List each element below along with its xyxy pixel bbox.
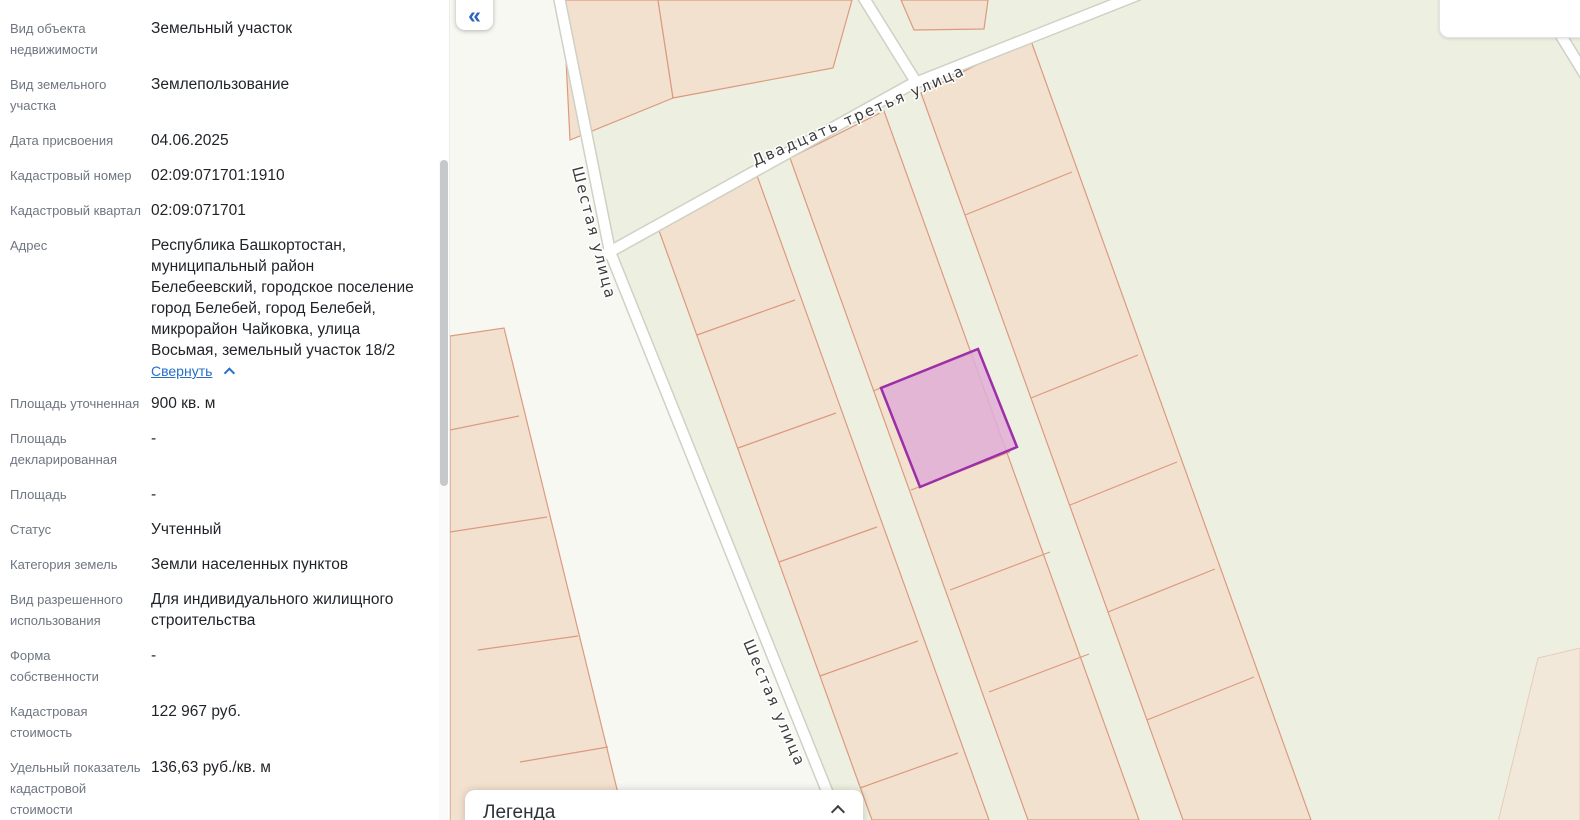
field-value: 02:09:071701	[151, 200, 423, 221]
cadastral-map-app: Вид объекта недвижимости Земельный участ…	[0, 0, 1580, 820]
field-value: -	[151, 484, 423, 505]
field-label: Площадь декларированная	[10, 428, 151, 470]
field-label: Дата присвоения	[10, 130, 151, 151]
info-row: Площадь декларированная -	[10, 428, 423, 470]
info-row: Кадастровая стоимость 122 967 руб.	[10, 701, 423, 743]
field-value: 122 967 руб.	[151, 701, 423, 743]
field-label: Вид объекта недвижимости	[10, 18, 151, 60]
legend-panel[interactable]: Легенда	[465, 790, 863, 820]
map-canvas[interactable]: Двадцать третья улица Шестая улица Шеста…	[450, 0, 1580, 820]
parcel-info-sidebar: Вид объекта недвижимости Земельный участ…	[0, 0, 450, 820]
field-value: Землепользование	[151, 74, 423, 116]
field-value: Земли населенных пунктов	[151, 554, 423, 575]
info-row-address: Адрес Республика Башкортостан, муниципал…	[10, 235, 423, 379]
field-label: Кадастровый квартал	[10, 200, 151, 221]
field-label: Категория земель	[10, 554, 151, 575]
info-row: Статус Учтенный	[10, 519, 423, 540]
field-label: Кадастровая стоимость	[10, 701, 151, 743]
chevron-up-icon[interactable]	[831, 805, 845, 819]
map-toolbar-panel[interactable]	[1439, 0, 1580, 38]
info-row: Кадастровый квартал 02:09:071701	[10, 200, 423, 221]
info-row: Кадастровый номер 02:09:071701:1910	[10, 165, 423, 186]
info-row: Удельный показатель кадастровой стоимост…	[10, 757, 423, 820]
sidebar-collapse-button[interactable]: «	[456, 0, 493, 30]
info-row: Вид объекта недвижимости Земельный участ…	[10, 18, 423, 60]
field-label: Площадь уточненная	[10, 393, 151, 414]
field-value: 900 кв. м	[151, 393, 423, 414]
info-row: Вид разрешенного использования Для индив…	[10, 589, 423, 631]
info-row: Площадь уточненная 900 кв. м	[10, 393, 423, 414]
sidebar-scrollbar-thumb[interactable]	[440, 160, 448, 486]
info-row: Категория земель Земли населенных пункто…	[10, 554, 423, 575]
field-label: Вид земельного участка	[10, 74, 151, 116]
field-value: -	[151, 645, 423, 687]
info-row: Форма собственности -	[10, 645, 423, 687]
field-label: Форма собственности	[10, 645, 151, 687]
field-label: Адрес	[10, 235, 151, 379]
sidebar-scrollbar-track[interactable]	[439, 160, 448, 820]
address-collapse-row: Свернуть	[151, 363, 423, 379]
field-label: Удельный показатель кадастровой стоимост…	[10, 757, 151, 820]
legend-title: Легенда	[483, 802, 555, 820]
field-value: Земельный участок	[151, 18, 423, 60]
chevron-up-icon[interactable]	[224, 367, 235, 378]
field-value: Для индивидуального жилищного строительс…	[151, 589, 423, 631]
map-svg: Двадцать третья улица Шестая улица Шеста…	[450, 0, 1580, 820]
address-collapse-link[interactable]: Свернуть	[151, 363, 212, 379]
field-label: Площадь	[10, 484, 151, 505]
field-label: Статус	[10, 519, 151, 540]
field-label: Вид разрешенного использования	[10, 589, 151, 631]
info-row: Площадь -	[10, 484, 423, 505]
field-value: 02:09:071701:1910	[151, 165, 423, 186]
field-value: 136,63 руб./кв. м	[151, 757, 423, 820]
field-value: Учтенный	[151, 519, 423, 540]
field-value: -	[151, 428, 423, 470]
double-chevron-left-icon: «	[468, 0, 481, 30]
info-row: Вид земельного участка Землепользование	[10, 74, 423, 116]
info-row: Дата присвоения 04.06.2025	[10, 130, 423, 151]
field-value: 04.06.2025	[151, 130, 423, 151]
field-value: Республика Башкортостан, муниципальный р…	[151, 235, 423, 361]
field-label: Кадастровый номер	[10, 165, 151, 186]
